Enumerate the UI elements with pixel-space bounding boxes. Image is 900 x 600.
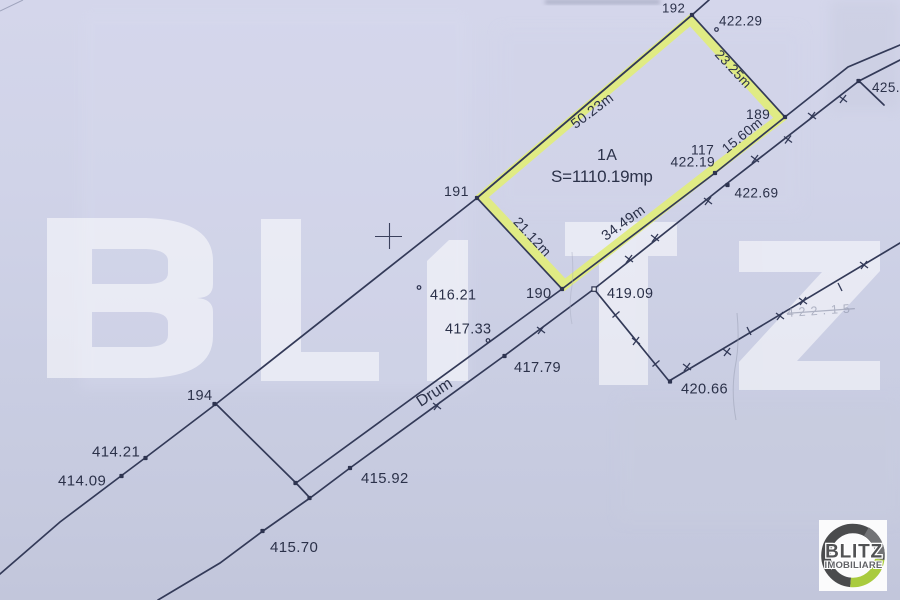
svg-text:422.69: 422.69: [735, 186, 779, 201]
svg-text:415.92: 415.92: [361, 471, 409, 487]
svg-text:IMOBILIARE: IMOBILIARE: [825, 560, 883, 571]
svg-text:422.29: 422.29: [719, 14, 762, 29]
svg-text:414.09: 414.09: [58, 473, 106, 490]
svg-text:414.21: 414.21: [92, 444, 140, 461]
svg-text:425.7: 425.7: [872, 80, 900, 95]
svg-text:190: 190: [526, 286, 552, 302]
svg-text:192: 192: [662, 1, 685, 16]
svg-text:419.09: 419.09: [607, 286, 653, 302]
svg-text:191: 191: [444, 184, 469, 200]
svg-text:417.33: 417.33: [445, 322, 491, 338]
svg-text:420.66: 420.66: [681, 382, 728, 398]
svg-text:422.19: 422.19: [671, 155, 716, 170]
svg-text:417.79: 417.79: [514, 360, 561, 376]
svg-text:S=1110.19mp: S=1110.19mp: [551, 167, 653, 186]
svg-text:416.21: 416.21: [430, 288, 476, 304]
svg-text:194: 194: [187, 388, 213, 404]
svg-text:415.70: 415.70: [270, 539, 318, 556]
svg-text:1A: 1A: [597, 147, 617, 164]
